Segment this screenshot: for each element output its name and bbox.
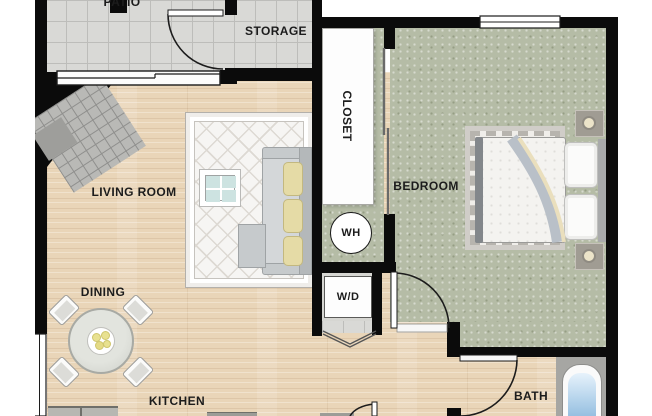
sofa-cushion	[283, 236, 303, 266]
dining-table	[68, 308, 134, 374]
wall	[372, 273, 382, 335]
room-label-living-room: LIVING ROOM	[91, 185, 176, 199]
wall	[225, 68, 322, 81]
wall	[35, 0, 47, 334]
room-label-bedroom: BEDROOM	[393, 179, 458, 193]
floor-plan: W/D WH	[0, 0, 652, 416]
bed-footboard	[475, 137, 483, 243]
bathtub-surround	[556, 357, 608, 416]
sofa-cushion	[283, 199, 303, 233]
coffee-table-glass-pane	[206, 190, 220, 202]
washer-dryer-label: W/D	[337, 291, 360, 303]
right-margin	[618, 0, 652, 416]
coffee-table-glass-pane	[222, 176, 236, 188]
bed-headboard	[598, 139, 606, 242]
lemon	[103, 340, 111, 348]
wall	[312, 262, 396, 273]
bed-pillow	[564, 142, 598, 188]
bed-pillow	[564, 194, 598, 240]
lamp-icon	[582, 116, 596, 130]
lamp-icon	[582, 249, 596, 263]
kitchen-counter	[48, 406, 118, 416]
room-label-closet: CLOSET	[340, 90, 354, 141]
fruit-plate	[87, 327, 115, 355]
wall	[220, 70, 237, 84]
water-heater-label: WH	[341, 227, 360, 239]
sofa-chaise	[238, 224, 266, 268]
bathtub	[562, 364, 602, 416]
nightstand	[575, 243, 604, 270]
coffee-table	[199, 169, 241, 207]
bathtub-water	[568, 373, 596, 416]
room-label-bath: BATH	[514, 389, 548, 403]
bed-mattress	[477, 137, 566, 243]
room-label-kitchen: KITCHEN	[149, 394, 205, 408]
wall	[322, 17, 480, 28]
room-label-patio: PATIO	[104, 0, 141, 9]
wall	[225, 0, 237, 15]
coffee-table-glass-pane	[222, 190, 236, 202]
sofa-cushion	[283, 162, 303, 196]
wall	[384, 27, 395, 49]
wall	[312, 0, 322, 336]
room-label-storage: STORAGE	[245, 24, 307, 38]
wall	[447, 408, 461, 416]
counter-divider	[80, 408, 82, 416]
nightstand	[575, 110, 604, 137]
left-margin	[0, 0, 35, 416]
wall	[455, 347, 618, 357]
room-label-dining: DINING	[81, 285, 125, 299]
bedroom-carpet-lower	[447, 322, 606, 347]
kitchen-counter	[207, 412, 257, 416]
coffee-table-glass-pane	[206, 176, 220, 188]
lemon	[101, 331, 110, 340]
